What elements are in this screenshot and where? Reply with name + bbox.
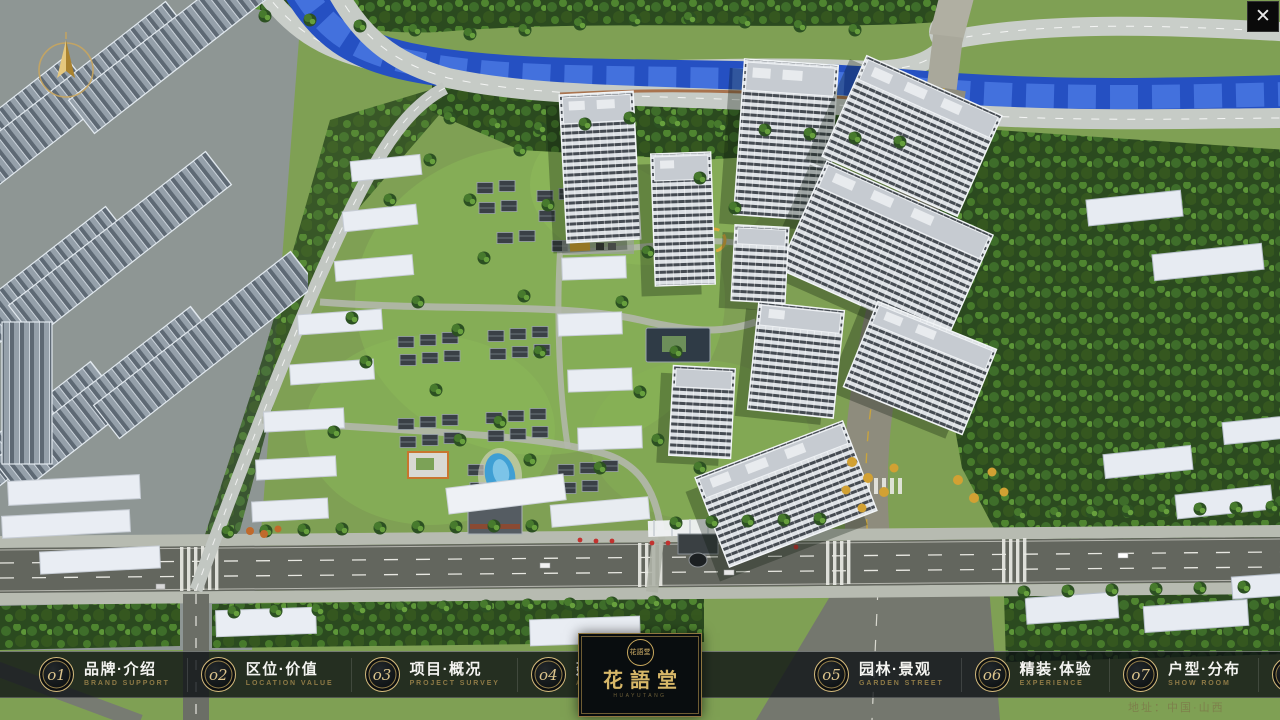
presentation-stage: ✕ o1 品牌·介绍 BRAND SUPPORT o2 区位·价值 LOCATI… — [0, 0, 1280, 720]
nav-group-right: o5 园林·景观 GARDEN STREET o6 精装·体验 EXPERIEN… — [801, 652, 1280, 697]
nav-item-brand-intro[interactable]: o1 品牌·介绍 BRAND SUPPORT — [26, 658, 188, 692]
nav-label-cn: 区位·价值 — [246, 662, 334, 678]
nav-label-en: LOCATION VALUE — [246, 680, 334, 687]
nav-item-room-view[interactable]: o8 一房·一景 COMMUNITY — [1259, 658, 1280, 692]
nav-label-en: BRAND SUPPORT — [84, 680, 170, 687]
main-road — [0, 525, 1280, 605]
nav-number-badge: o3 — [365, 657, 400, 692]
nav-number-badge: o8 — [1272, 657, 1280, 692]
nav-number-badge: o1 — [39, 657, 74, 692]
nav-number-badge: o2 — [201, 657, 236, 692]
nav-group-left: o1 品牌·介绍 BRAND SUPPORT o2 区位·价值 LOCATION… — [26, 652, 669, 697]
nav-label-en: PROJECT SURVEY — [410, 680, 500, 687]
project-address: 地址：中国·山西 — [1128, 699, 1225, 715]
nav-number-badge: o5 — [814, 657, 849, 692]
project-logo-panel[interactable]: 花語堂 花語堂 HUAYUTANG — [578, 633, 702, 717]
close-icon: ✕ — [1255, 7, 1271, 26]
nav-label-cn: 精装·体验 — [1020, 662, 1093, 678]
nav-item-landscape[interactable]: o5 园林·景观 GARDEN STREET — [801, 658, 962, 692]
nav-item-location-value[interactable]: o2 区位·价值 LOCATION VALUE — [188, 658, 352, 692]
nav-item-floorplan-distribution[interactable]: o7 户型·分布 SHOW ROOM — [1110, 658, 1259, 692]
project-subtitle: HUAYUTANG — [613, 693, 666, 699]
nav-label-cn: 园林·景观 — [859, 662, 944, 678]
nav-label-en: EXPERIENCE — [1020, 680, 1093, 687]
logo-seal-icon: 花語堂 — [627, 639, 654, 666]
nav-item-project-overview[interactable]: o3 项目·概况 PROJECT SURVEY — [352, 658, 518, 692]
nav-label-en: SHOW ROOM — [1168, 680, 1241, 687]
nav-item-interior-experience[interactable]: o6 精装·体验 EXPERIENCE — [962, 658, 1111, 692]
nav-number-badge: o4 — [531, 657, 566, 692]
nav-label-cn: 户型·分布 — [1168, 662, 1241, 678]
close-button[interactable]: ✕ — [1247, 1, 1279, 32]
nav-number-badge: o7 — [1123, 657, 1158, 692]
nav-label-cn: 项目·概况 — [410, 662, 500, 678]
masterplan-viewport[interactable] — [0, 0, 1280, 720]
project-title: 花語堂 — [596, 669, 684, 691]
nav-number-badge: o6 — [975, 657, 1010, 692]
nav-label-cn: 品牌·介绍 — [84, 662, 170, 678]
nav-label-en: GARDEN STREET — [859, 680, 944, 687]
